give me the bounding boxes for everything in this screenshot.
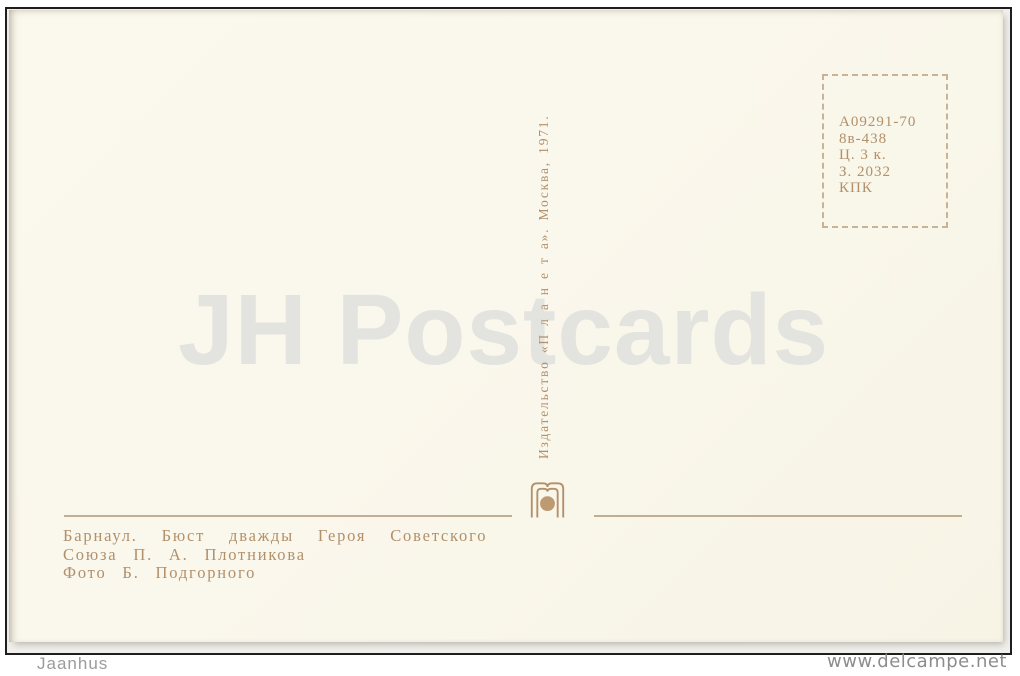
print-code-line: А09291-70	[839, 114, 946, 131]
site-url-watermark: www.delcampe.net	[827, 652, 1007, 672]
postcard-caption: Барнаул. Бюст дважды Героя Советского Со…	[63, 527, 487, 583]
caption-line: Союза П. А. Плотникова	[63, 546, 487, 565]
print-code-line: 8в-438	[839, 131, 946, 148]
seller-name-watermark: Jaanhus	[37, 655, 108, 673]
print-code-line: Ц. 3 к.	[839, 147, 946, 164]
caption-line: Фото Б. Подгорного	[63, 564, 487, 583]
print-code-line: КПК	[839, 180, 946, 197]
caption-divider-rule	[64, 515, 512, 517]
print-code-box: А09291-70 8в-438 Ц. 3 к. З. 2032 КПК	[822, 74, 948, 228]
address-rule	[594, 515, 962, 517]
caption-line: Барнаул. Бюст дважды Героя Советского	[63, 527, 487, 546]
publisher-imprint-vertical: Издательство «П л а н е т а». Москва, 19…	[536, 67, 562, 459]
planeta-publisher-logo	[529, 479, 566, 519]
postcard-back: JH Postcards А09291-70 8в-438 Ц. 3 к. З.…	[9, 10, 1003, 642]
print-code-line: З. 2032	[839, 164, 946, 181]
postcard-scan-frame: JH Postcards А09291-70 8в-438 Ц. 3 к. З.…	[5, 7, 1012, 655]
seller-watermark-text: JH Postcards	[178, 280, 829, 380]
